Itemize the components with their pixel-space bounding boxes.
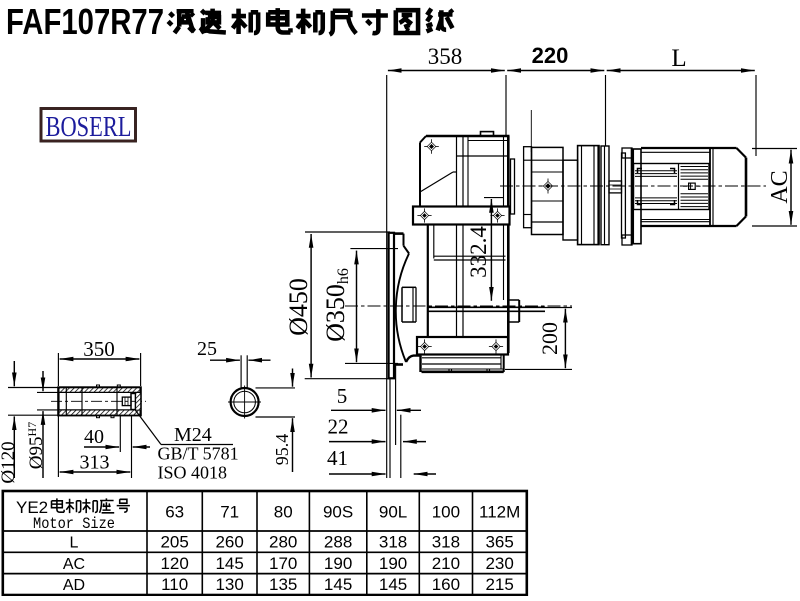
svg-text:220: 220 [532, 43, 569, 68]
svg-text:AC: AC [63, 556, 85, 573]
svg-text:90S: 90S [323, 503, 353, 522]
svg-text:145: 145 [379, 575, 407, 594]
svg-text:130: 130 [215, 575, 243, 594]
svg-text:145: 145 [215, 554, 243, 573]
svg-text:AC: AC [767, 170, 793, 203]
svg-text:365: 365 [485, 533, 513, 552]
svg-text:110: 110 [161, 575, 188, 594]
svg-text:160: 160 [432, 575, 460, 594]
svg-text:Ø120: Ø120 [0, 441, 19, 483]
svg-text:FAF107R77: FAF107R77 [6, 1, 164, 42]
svg-text:145: 145 [324, 575, 352, 594]
svg-text:190: 190 [379, 554, 407, 573]
svg-text:Motor Size: Motor Size [33, 515, 115, 533]
svg-text:358: 358 [428, 44, 463, 69]
svg-text:210: 210 [432, 554, 460, 573]
svg-text:135: 135 [269, 575, 297, 594]
svg-text:100: 100 [432, 503, 460, 522]
svg-text:BOSERL: BOSERL [46, 111, 132, 143]
svg-text:313: 313 [80, 452, 110, 474]
svg-text:318: 318 [379, 533, 407, 552]
svg-text:288: 288 [324, 533, 352, 552]
svg-text:L: L [671, 45, 686, 72]
svg-text:120: 120 [160, 554, 188, 573]
svg-text:80: 80 [274, 503, 293, 522]
svg-text:71: 71 [220, 503, 239, 522]
svg-text:200: 200 [537, 322, 562, 355]
svg-text:63: 63 [165, 503, 184, 522]
svg-text:112M: 112M [479, 503, 520, 522]
svg-text:280: 280 [269, 533, 297, 552]
svg-text:Ø450: Ø450 [284, 278, 313, 336]
svg-text:40: 40 [84, 426, 104, 448]
svg-text:41: 41 [327, 446, 348, 470]
svg-text:90L: 90L [379, 503, 407, 522]
svg-text:22: 22 [328, 415, 349, 439]
svg-text:25: 25 [197, 338, 217, 360]
svg-text:5: 5 [337, 384, 348, 408]
svg-text:260: 260 [215, 533, 243, 552]
svg-text:318: 318 [432, 533, 460, 552]
svg-text:AD: AD [63, 577, 85, 594]
svg-text:95.4: 95.4 [272, 434, 292, 466]
svg-text:ISO 4018: ISO 4018 [158, 463, 228, 483]
svg-text:205: 205 [160, 533, 188, 552]
svg-text:230: 230 [485, 554, 513, 573]
svg-text:L: L [70, 535, 79, 552]
svg-text:332.4: 332.4 [466, 226, 491, 278]
svg-text:190: 190 [324, 554, 352, 573]
svg-text:170: 170 [269, 554, 297, 573]
svg-text:215: 215 [485, 575, 513, 594]
svg-text:350: 350 [83, 337, 115, 361]
svg-text:GB/T 5781: GB/T 5781 [158, 444, 239, 464]
